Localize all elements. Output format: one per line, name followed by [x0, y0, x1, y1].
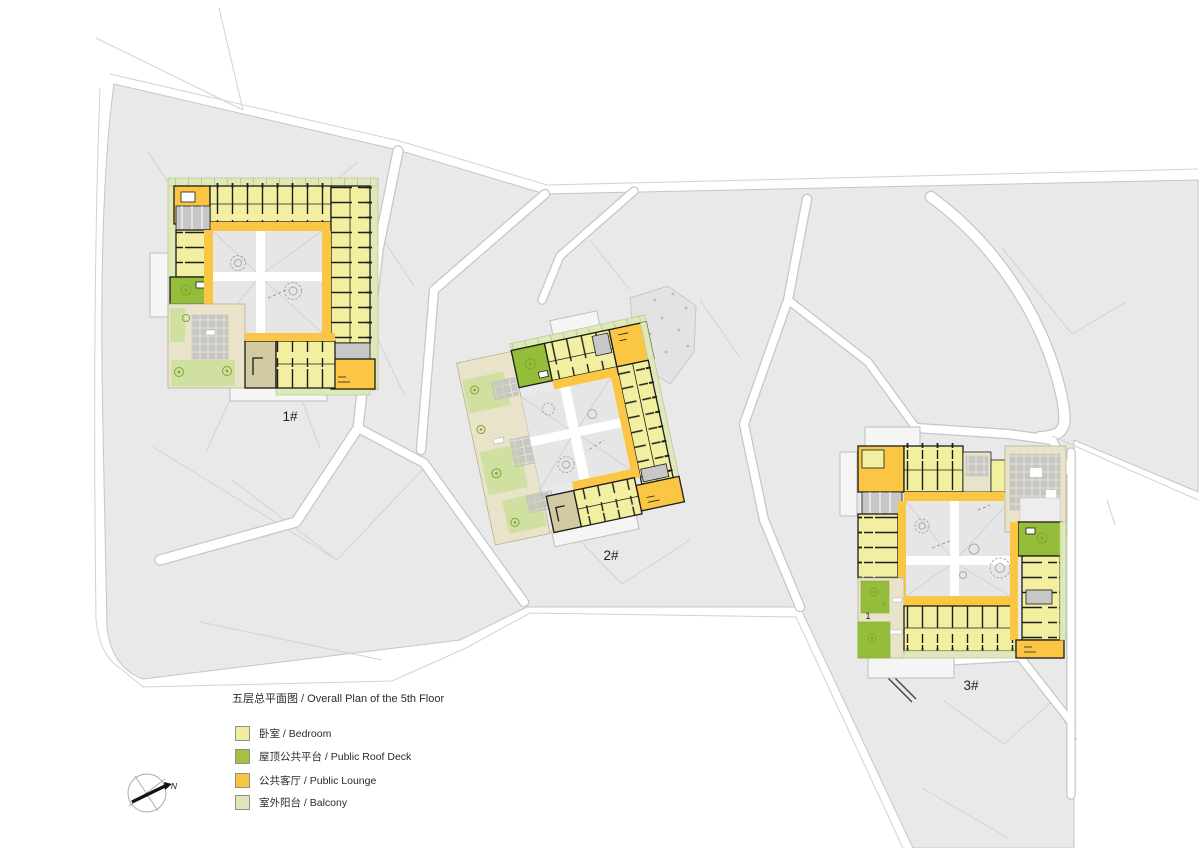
- building-1: [168, 178, 378, 395]
- corridor-south: [245, 333, 335, 341]
- legend-swatch-balcony: [235, 795, 250, 810]
- corridor-east: [1010, 522, 1018, 640]
- legend-label-lounge: 公共客厅 / Public Lounge: [259, 773, 376, 788]
- legend-item-bedroom: 卧室 / Bedroom: [235, 726, 331, 741]
- building-1-terrace: [168, 304, 245, 388]
- utility-block: [1026, 590, 1052, 604]
- building-2-label: 2#: [603, 548, 619, 563]
- north-needle: [132, 786, 165, 802]
- legend-swatch-lounge: [235, 773, 250, 788]
- north-label: N: [171, 781, 178, 791]
- lounge-mark: [181, 192, 195, 202]
- building-3: 1: [858, 443, 1066, 658]
- corridor-west: [204, 230, 213, 311]
- legend-swatch-roof-deck: [235, 749, 250, 764]
- bedroom-sub: [991, 460, 1005, 492]
- building-3-terrace: 1: [858, 578, 904, 658]
- legend-label-bedroom: 卧室 / Bedroom: [259, 726, 331, 741]
- utility-block: [176, 206, 210, 230]
- page-title: 五层总平面图 / Overall Plan of the 5th Floor: [232, 690, 444, 706]
- building-2-courtyard: [521, 377, 631, 488]
- stair-room: [245, 341, 276, 388]
- lounge-corner-se: [331, 359, 375, 389]
- corridor-north: [904, 492, 1004, 501]
- building-1-label: 1#: [282, 409, 298, 424]
- legend-item-lounge: 公共客厅 / Public Lounge: [235, 773, 376, 788]
- lounge-corner-se: [1016, 640, 1064, 658]
- corridor-south: [904, 596, 1016, 606]
- compass-rose: N: [128, 774, 178, 812]
- roof-deck-room: [170, 277, 208, 304]
- legend-swatch-bedroom: [235, 726, 250, 741]
- corridor-east: [322, 231, 331, 334]
- roof-deck-room: [1018, 522, 1062, 556]
- building-3-courtyard: [906, 501, 1010, 596]
- site-plan-svg: 1 1# 2# 3# N: [0, 0, 1200, 848]
- unit-label: 1: [865, 611, 870, 621]
- corridor-north: [210, 222, 331, 231]
- utility-block: [332, 343, 370, 359]
- legend-label-balcony: 室外阳台 / Balcony: [259, 795, 347, 810]
- terrace-strip: [1020, 498, 1060, 522]
- legend-item-roof-deck: 屋顶公共平台 / Public Roof Deck: [235, 749, 411, 764]
- utility-block: [862, 492, 902, 514]
- building-3-label: 3#: [963, 678, 979, 693]
- bedroom-sub: [862, 450, 884, 468]
- site-plan-sheet: 1 1# 2# 3# N 五层总平面图 / Overall: [0, 0, 1200, 848]
- legend-item-balcony: 室外阳台 / Balcony: [235, 795, 347, 810]
- legend-label-roof-deck: 屋顶公共平台 / Public Roof Deck: [259, 749, 411, 764]
